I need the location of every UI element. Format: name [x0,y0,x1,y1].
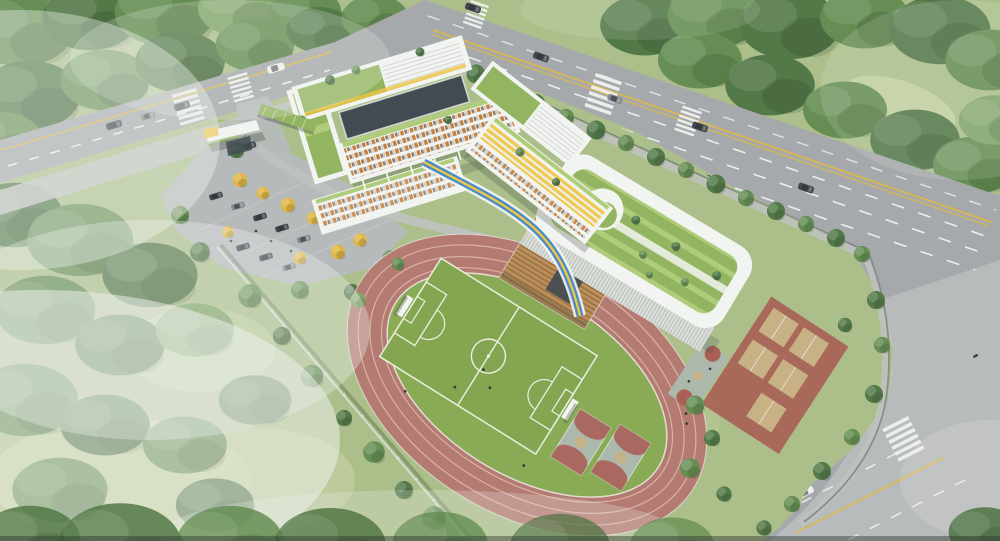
campus-aerial-rendering: Aerial rendering of a school campus with… [0,0,1000,541]
rendering-canvas [0,0,1000,541]
mist-overlay [0,0,1000,541]
